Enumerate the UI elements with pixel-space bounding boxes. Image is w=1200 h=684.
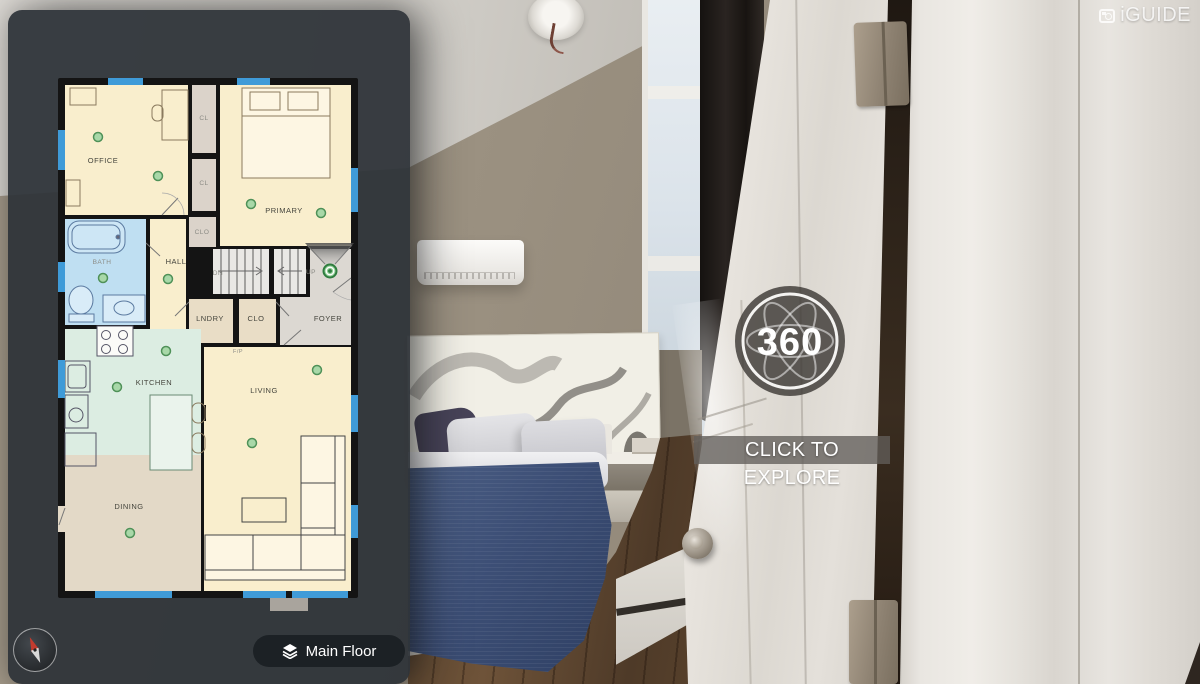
iguide-logo-text: iGUIDE (1120, 4, 1191, 27)
room-label: DINING (114, 502, 143, 511)
window-marker (58, 360, 65, 398)
window-marker (351, 505, 358, 538)
panorama-marker[interactable] (162, 347, 171, 356)
nightstand-books (632, 438, 659, 452)
door-hinge (849, 600, 898, 684)
room-label: FOYER (314, 314, 342, 323)
door-frame-seam (1078, 0, 1080, 684)
room-label: BATH (93, 259, 112, 266)
door-hinge (854, 21, 910, 107)
panorama-marker[interactable] (113, 383, 122, 392)
window-marker (292, 591, 348, 598)
panorama-marker[interactable] (126, 529, 135, 538)
panorama-marker[interactable] (164, 275, 173, 284)
room-label: LIVING (250, 386, 278, 395)
explore-360-badge[interactable]: 360 (734, 285, 846, 397)
compass-needle-icon (17, 632, 53, 668)
panorama-marker[interactable] (248, 439, 257, 448)
compass-button[interactable] (13, 628, 57, 672)
panorama-marker[interactable] (247, 200, 256, 209)
exterior-step (270, 598, 308, 611)
panorama-marker[interactable] (154, 172, 163, 181)
room-label: CLO (195, 229, 210, 236)
iguide-logo: iGUIDE (1099, 4, 1191, 27)
iguide-logo-icon (1099, 9, 1115, 23)
room-label: DN (213, 270, 223, 277)
window-muntin (648, 256, 708, 271)
window-marker (108, 78, 143, 85)
room-label: OFFICE (88, 156, 119, 165)
floorplan-map[interactable]: OFFICECLCLPRIMARYCLOBATHHALLDNUPLNDRYCLO… (58, 78, 358, 613)
active-marker-dot (328, 269, 332, 273)
room-label: CL (199, 115, 208, 122)
room-label: CLO (248, 314, 265, 323)
click-to-explore-label[interactable]: CLICK TO EXPLORE (694, 436, 890, 464)
window-marker (58, 130, 65, 170)
iguide-viewer: iGUIDE 360 CLICK TO EXPLORE (0, 0, 1200, 684)
panorama-marker[interactable] (94, 133, 103, 142)
room-label: F/P (233, 349, 243, 355)
floorplan-panel: OFFICECLCLPRIMARYCLOBATHHALLDNUPLNDRYCLO… (8, 10, 410, 684)
window-muntin (648, 86, 708, 99)
window-marker (243, 591, 286, 598)
panorama-marker[interactable] (313, 366, 322, 375)
door-knob (682, 528, 713, 559)
window-marker (351, 168, 358, 212)
room-label: KITCHEN (136, 378, 172, 387)
door-frame (896, 0, 1200, 684)
room-label: LNDRY (196, 314, 224, 323)
floor-selector-button[interactable]: Main Floor (253, 635, 405, 667)
badge-360-text: 360 (757, 322, 823, 364)
panorama-marker[interactable] (317, 209, 326, 218)
mini-split-ac (417, 240, 524, 285)
window-marker (58, 262, 65, 292)
room-label: CL (199, 180, 208, 187)
floor-selector-label: Main Floor (306, 643, 377, 660)
window-marker (351, 395, 358, 432)
window-marker (95, 591, 172, 598)
room-label: PRIMARY (265, 206, 303, 215)
room-label: HALL (166, 257, 187, 266)
window-marker (237, 78, 270, 85)
panorama-marker[interactable] (99, 274, 108, 283)
layers-icon (282, 643, 298, 659)
room-label: UP (306, 269, 316, 276)
